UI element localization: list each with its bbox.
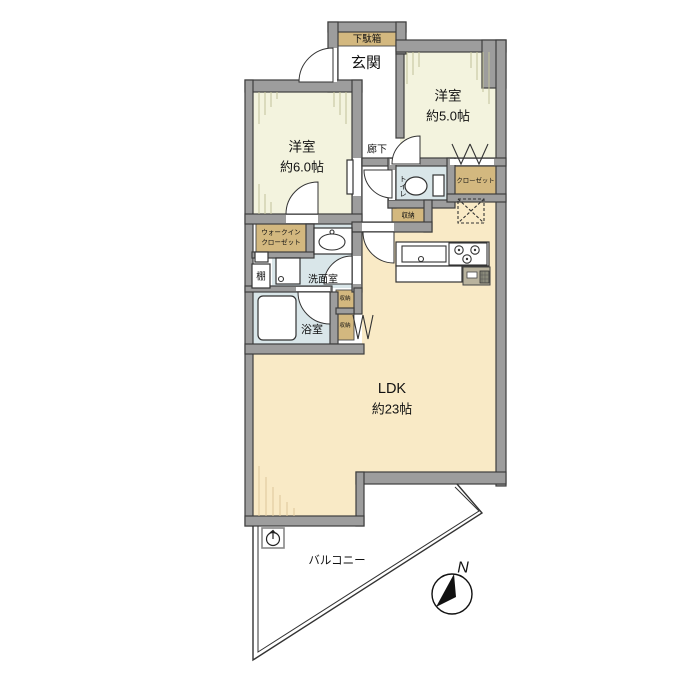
storage-lower-label: 収納 bbox=[339, 321, 351, 329]
counter-base bbox=[396, 266, 462, 282]
storage-hall-label: 収納 bbox=[401, 211, 415, 220]
toilet-label: トイレ bbox=[399, 175, 408, 198]
corridor-label: 廊下 bbox=[367, 143, 387, 156]
bathroom-label: 浴室 bbox=[301, 322, 323, 336]
utility-box bbox=[463, 267, 490, 285]
shelf-label: 棚 bbox=[256, 271, 266, 283]
washing-machine-pan bbox=[276, 258, 300, 284]
genkan-label: 玄関 bbox=[351, 55, 381, 72]
compass-north-label: N bbox=[457, 560, 469, 577]
floorplan-drawing: N 下駄箱 玄関 洋室 約5.0帖 洋室 約6.0帖 廊下 トイレ クローゼット… bbox=[0, 0, 700, 700]
bedroom5-label: 洋室 bbox=[435, 88, 462, 104]
kitchen-counter bbox=[396, 242, 490, 285]
toilet-bowl bbox=[405, 177, 427, 195]
getabako-label: 下駄箱 bbox=[353, 33, 382, 45]
bedroom5-size: 約5.0帖 bbox=[426, 109, 470, 124]
bathtub bbox=[258, 296, 296, 340]
bedroom6-size: 約6.0帖 bbox=[280, 160, 324, 175]
shelf-niche bbox=[255, 252, 268, 262]
balcony-faucet bbox=[262, 528, 284, 548]
bedroom6-sliding-door bbox=[347, 160, 353, 194]
bedroom6-label: 洋室 bbox=[289, 139, 316, 155]
wic-label-line2: クローゼット bbox=[261, 238, 301, 247]
ldk-size: 約23帖 bbox=[372, 402, 412, 417]
wic-label-line1: ウォークイン bbox=[261, 229, 301, 237]
ldk-label: LDK bbox=[378, 381, 407, 397]
storage-upper-label: 収納 bbox=[339, 294, 351, 302]
closet-label: クローゼット bbox=[456, 176, 494, 185]
ldk-floor-left bbox=[253, 354, 364, 516]
toilet-tank bbox=[433, 175, 444, 196]
floorplan-page: N 下駄箱 玄関 洋室 約5.0帖 洋室 約6.0帖 廊下 トイレ クローゼット… bbox=[0, 0, 700, 700]
washroom-label: 洗面室 bbox=[308, 273, 338, 286]
wic-box bbox=[256, 224, 306, 252]
balcony-label: バルコニー bbox=[308, 554, 365, 567]
